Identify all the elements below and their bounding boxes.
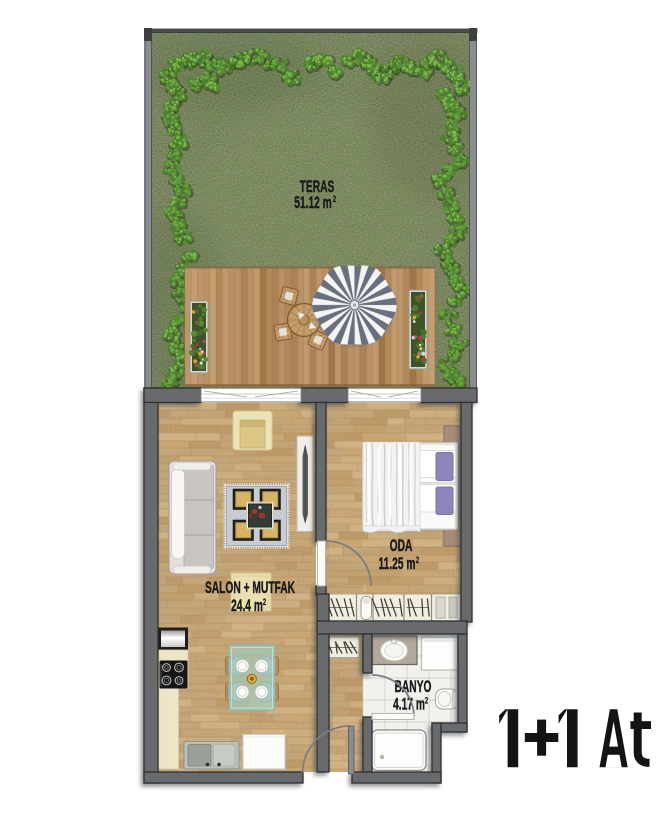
svg-text:2: 2 (416, 555, 420, 566)
svg-text:24.4 m: 24.4 m (231, 597, 263, 615)
svg-text:SALON + MUTFAK: SALON + MUTFAK (205, 579, 295, 597)
svg-text:2: 2 (333, 194, 337, 205)
svg-text:2: 2 (263, 597, 267, 608)
svg-text:ODA: ODA (390, 537, 413, 555)
svg-text:11.25 m: 11.25 m (379, 555, 416, 573)
svg-text:51.12 m: 51.12 m (294, 194, 332, 212)
svg-text:2: 2 (425, 695, 429, 706)
